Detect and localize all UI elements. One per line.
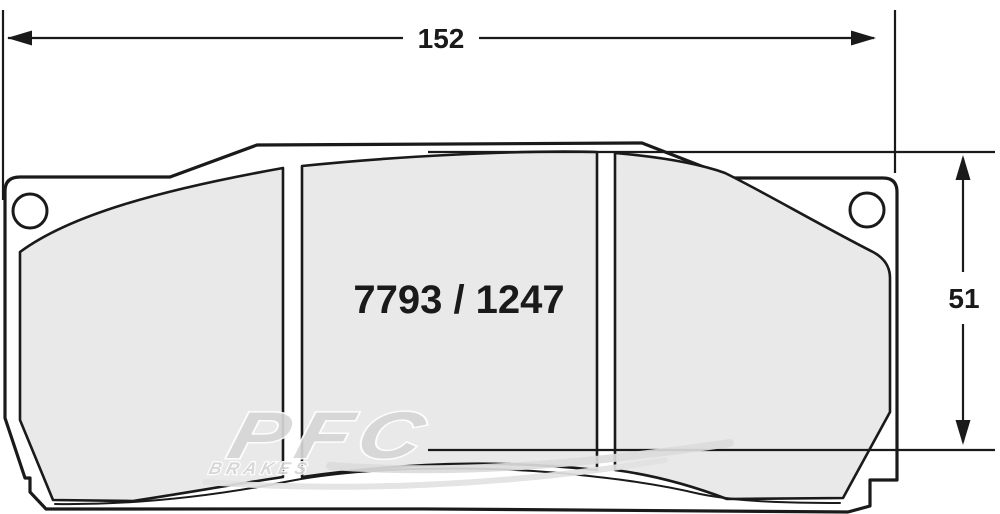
arrowhead-right-icon <box>851 31 876 46</box>
part-number-label: 7793 / 1247 <box>353 278 564 322</box>
watermark-sub-brand: BRAKES <box>207 458 314 478</box>
brake-pad-outline-group <box>5 143 897 512</box>
arrowhead-down-icon <box>956 420 971 445</box>
arrowhead-left-icon <box>7 31 32 46</box>
mounting-hole-right <box>850 193 884 227</box>
width-dimension-label: 152 <box>418 23 465 54</box>
height-dimension-label: 51 <box>948 283 979 314</box>
arrowhead-up-icon <box>956 155 971 180</box>
brake-pad-diagram: 152 51 PFC BRAKES 7793 / 1247 <box>0 0 1000 514</box>
mounting-hole-left <box>13 194 47 228</box>
drawing-canvas: 152 51 PFC BRAKES 7793 / 1247 <box>0 0 1000 514</box>
